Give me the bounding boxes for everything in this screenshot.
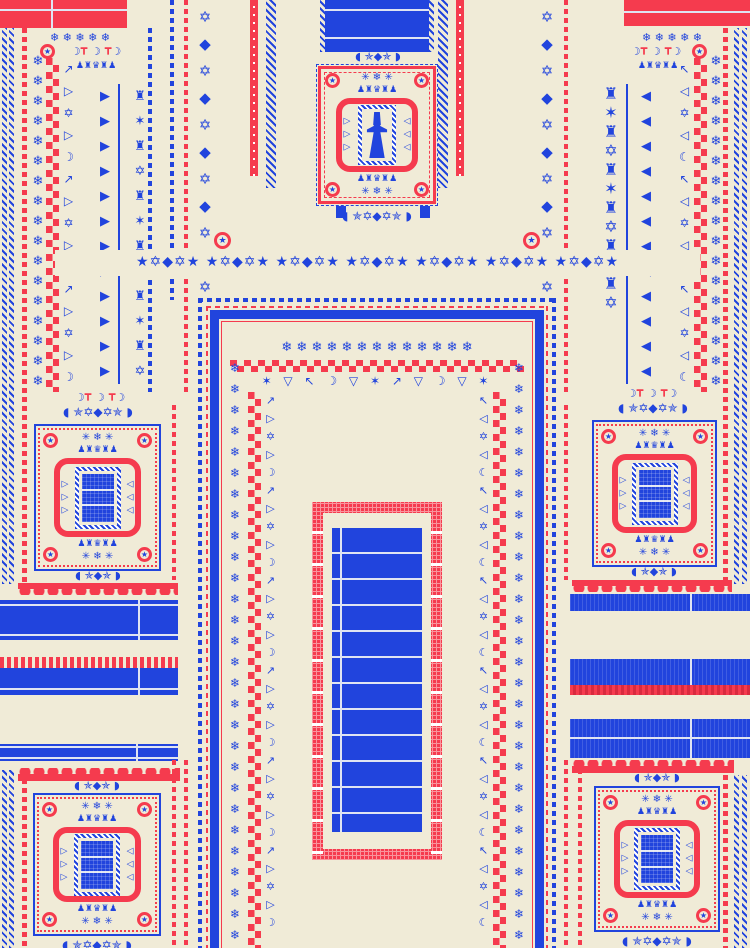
snowflake-row: ✳ ❄ ✳	[62, 551, 133, 563]
star-medallion: ★	[137, 912, 152, 927]
invader-row: ♟♜♛♜♟	[64, 539, 131, 550]
snowflake-row: ✳ ❄ ✳	[344, 186, 410, 198]
divider-line	[0, 9, 127, 11]
tick-column	[312, 502, 323, 860]
snowflake-column: ❄ ❄ ❄ ❄ ❄ ❄ ❄ ❄ ❄ ❄ ❄ ❄ ❄ ❄ ❄ ❄ ❄ ❄ ❄ ❄ …	[510, 358, 528, 948]
dashed-line	[184, 0, 188, 392]
invader-row: ♟♜♛♜♟	[63, 814, 131, 825]
meander-chain	[230, 360, 524, 372]
panel-grid	[82, 474, 114, 522]
edge-bar	[2, 770, 7, 948]
carpet-artwork: ◖ ✯◆✯ ◗ ★ ★ ★ ★ ✳ ❄ ✳ ♟♜♛♜♟ ▷ ▷ ▷ ◁ ◁ ◁ …	[0, 0, 750, 948]
crescent-row: ☽ ☽ ☽	[616, 46, 696, 59]
star-medallion: ★	[603, 795, 618, 810]
hatch-bar	[438, 0, 448, 188]
invader-row: ♟♜♛♜♟	[622, 441, 687, 452]
star-medallion: ★	[414, 182, 429, 197]
ornament-row: ◖ ✯✡◆✡✯ ◗	[592, 400, 714, 417]
star-medallion: ★	[693, 543, 708, 558]
flag-band	[0, 744, 178, 761]
divider-line	[320, 9, 434, 11]
invader-row: ♟♜♛♜♟	[620, 61, 696, 73]
star-medallion: ★	[137, 547, 152, 562]
rug-border	[206, 306, 208, 948]
dashed-line	[564, 760, 568, 948]
divider-line	[624, 11, 750, 13]
meander-chain	[493, 392, 506, 948]
star-medallion: ★	[693, 429, 708, 444]
star-medallion: ★	[325, 182, 340, 197]
panel-grid	[641, 835, 673, 883]
dashed-line	[172, 405, 176, 580]
invader-row: ♟♜♛♜♟	[624, 900, 690, 911]
hatch-edge	[320, 0, 325, 52]
motif-column: ▷ ▷ ▷	[58, 478, 72, 517]
motif-column: ◁ ◁ ◁	[400, 116, 414, 155]
snowflake-row: ✳ ❄ ✳	[622, 794, 692, 806]
flag-band	[0, 600, 178, 640]
chain-motif-column: ↖ ◁ ✡ ◁ ☾ ↖ ◁ ✡ ◁ ☾ ↖ ◁ ✡ ◁ ☾	[676, 58, 693, 392]
edge-bar	[22, 770, 27, 948]
star-medallion: ★	[696, 908, 711, 923]
snowflake-column: ❄ ❄ ❄ ❄ ❄ ❄ ❄ ❄ ❄ ❄ ❄ ❄ ❄ ❄ ❄ ❄ ❄	[29, 52, 47, 392]
edge-bar	[723, 28, 728, 584]
dashed-line	[578, 760, 582, 948]
ornament-row: ◖ ✯◆✯ ◗	[38, 570, 158, 583]
star-medallion: ★	[43, 433, 58, 448]
star-medallion: ★	[523, 232, 540, 249]
divider-line	[570, 737, 750, 739]
divider-line	[0, 688, 178, 690]
rug-border	[206, 306, 548, 308]
rug-border	[198, 298, 202, 948]
red-bar	[250, 0, 258, 176]
striped-band	[570, 685, 750, 695]
flag-band	[0, 668, 178, 695]
edge-bar	[22, 28, 27, 584]
star-medallion: ★	[137, 802, 152, 817]
snowflake-row: ✳ ❄ ✳	[61, 916, 133, 928]
divider-line	[0, 746, 178, 748]
divider-line	[0, 604, 178, 606]
chain-motif-column: ↖ ◁ ✡ ◁ ☾ ↖ ◁ ✡ ◁ ☾ ↖ ◁ ✡ ◁ ☾ ↖ ◁ ✡ ◁ ☾ …	[475, 392, 492, 948]
star-medallion: ★	[601, 543, 616, 558]
star-medallion: ★	[325, 73, 340, 88]
star-medallion: ★	[42, 802, 57, 817]
edge-bar	[734, 775, 739, 948]
snowflake-row: ✳ ❄ ✳	[62, 432, 133, 444]
ornament-row: ◖ ✯✡◆✡✯ ◗	[38, 404, 158, 421]
motif-column: ▷ ▷ ▷	[340, 116, 354, 155]
motif-column: ◁ ◁ ◁	[682, 840, 696, 879]
scallop-band	[572, 580, 732, 592]
star-medallion: ★	[414, 73, 429, 88]
snowflake-row: ✳ ❄ ✳	[620, 428, 689, 440]
dashed-line	[184, 760, 188, 948]
striped-band	[0, 657, 178, 668]
rug-bottom-left: ★ ★ ★ ★ ✳ ❄ ✳ ♟♜♛♜♟ ▷ ▷ ▷ ◁ ◁ ◁ ♟♜♛♜♟ ✳ …	[33, 793, 161, 936]
snowflake-row: ✳ ❄ ✳	[344, 72, 410, 84]
star-medallion: ★	[137, 433, 152, 448]
divider-line	[690, 659, 692, 685]
arrow-column: ▶ ▶ ▶ ▶ ▶ ▶ ▶ ▶ ▶ ▶ ▶ ▶	[92, 84, 120, 384]
edge-bar	[734, 28, 739, 584]
invader-row: ♟♜♛♜♟	[63, 904, 131, 915]
divider-line	[320, 37, 434, 39]
meander-chain	[694, 58, 707, 392]
top-left-red-block	[0, 0, 127, 28]
top-blue-panel	[320, 0, 434, 52]
arrow-column: ◀ ◀ ◀ ◀ ◀ ◀ ◀ ◀ ◀ ◀ ◀ ◀	[632, 84, 660, 384]
rug-border	[198, 298, 556, 302]
snowflake-row: ✳ ❄ ✳	[61, 801, 133, 813]
dashed-line	[148, 28, 152, 392]
snowflake-row: ✳ ❄ ✳	[622, 912, 692, 924]
top-right-red-block	[624, 0, 750, 26]
central-blue-panel	[332, 528, 422, 832]
divider-line	[690, 594, 692, 611]
divider-line	[0, 757, 178, 759]
ornament-row: ◖ ✯◆✯ ◗	[318, 50, 438, 65]
motif-column: ◁ ◁ ◁	[123, 478, 137, 517]
ornament-row: ◖ ✯◆✯ ◗	[36, 780, 158, 793]
divider-line	[690, 719, 692, 758]
motif-column: ◁ ◁ ◁	[123, 845, 137, 884]
invader-column: ♜ ✶ ♜ ✡ ♜ ✶ ♜ ✡ ♜ ✶ ♜ ✡	[596, 84, 628, 384]
dashed-line	[172, 760, 176, 948]
edge-bar	[2, 28, 7, 584]
motif-column: ▷ ▷ ▷	[57, 845, 71, 884]
star-medallion: ★	[43, 547, 58, 562]
dashed-line	[564, 405, 568, 580]
scallop-band	[18, 583, 178, 595]
snowflake-row: ✳ ❄ ✳	[620, 547, 689, 559]
snowflake-column: ❄ ❄ ❄ ❄ ❄ ❄ ❄ ❄ ❄ ❄ ❄ ❄ ❄ ❄ ❄ ❄ ❄ ❄ ❄ ❄ …	[226, 358, 244, 948]
edge-bar	[9, 28, 14, 584]
invader-row: ♟♜♛♜♟	[624, 807, 690, 818]
ornament-row: ◖ ✯✡◆✡✯ ◗	[316, 208, 438, 226]
rug-top-center: ★ ★ ★ ★ ✳ ❄ ✳ ♟♜♛♜♟ ▷ ▷ ▷ ◁ ◁ ◁ ♟♜♛♜♟ ✳ …	[316, 64, 438, 206]
invader-row: ♟♜♛♜♟	[346, 174, 408, 185]
motif-column: ▷ ▷ ▷	[618, 840, 632, 879]
ornament-row: ◖ ✯✡◆✡✯ ◗	[36, 938, 158, 948]
ornament-row: ◖ ✯◆✯ ◗	[594, 566, 714, 579]
rug-middle-left: ★ ★ ★ ★ ✳ ❄ ✳ ♟♜♛♜♟ ▷ ▷ ▷ ◁ ◁ ◁ ♟♜♛♜♟ ✳ …	[34, 424, 161, 571]
center-panel	[358, 105, 396, 165]
star-medallion: ★	[214, 232, 231, 249]
divider-line	[51, 0, 53, 28]
ornament-row: ◖ ✯✡◆✡✯ ◗	[598, 934, 716, 948]
red-bar	[456, 0, 464, 176]
rug-border	[552, 298, 556, 948]
meander-motif-row: ✶ ▽ ↖ ☽ ▽ ✶ ↗ ▽ ☽ ▽ ✶	[230, 373, 524, 391]
star-band: ★✡◆✡★ ★✡◆✡★ ★✡◆✡★ ★✡◆✡★ ★✡◆✡★ ★✡◆✡★ ★✡◆✡…	[55, 250, 700, 276]
invader-row: ♟♜♛♜♟	[64, 445, 131, 456]
chain-motif-column: ↗ ▷ ✡ ▷ ☽ ↗ ▷ ✡ ▷ ☽ ↗ ▷ ✡ ▷ ☽ ↗ ▷ ✡ ▷ ☽ …	[262, 392, 279, 948]
divider-line	[138, 668, 140, 695]
star-medallion: ★	[603, 908, 618, 923]
center-panel	[74, 834, 120, 896]
rug-bottom-right: ★ ★ ★ ★ ✳ ❄ ✳ ♟♜♛♜♟ ▷ ▷ ▷ ◁ ◁ ◁ ♟♜♛♜♟ ✳ …	[594, 786, 720, 932]
motif-column: ◁ ◁ ◁	[679, 474, 693, 513]
star-medallion: ★	[696, 795, 711, 810]
divider-line	[0, 634, 178, 636]
panel-grid	[639, 470, 671, 518]
dashed-line	[564, 0, 568, 392]
tick-column	[431, 502, 442, 860]
panel-grid	[81, 841, 113, 889]
divider-line	[136, 744, 138, 761]
center-panel	[75, 467, 121, 529]
edge-bar	[742, 28, 747, 584]
motif-column: ▷ ▷ ▷	[616, 474, 630, 513]
edge-bar	[723, 775, 728, 948]
snowflake-row: ❄ ❄ ❄ ❄ ❄ ❄ ❄ ❄ ❄ ❄ ❄ ❄ ❄	[228, 338, 526, 358]
meander-chain	[46, 58, 59, 392]
central-panel-frame	[312, 502, 442, 860]
flag-band	[570, 659, 750, 685]
invader-row: ♟♜♛♜♟	[622, 535, 687, 546]
center-panel	[634, 828, 680, 890]
hatch-edge	[429, 0, 434, 52]
rug-middle-right: ★ ★ ★ ★ ✳ ❄ ✳ ♟♜♛♜♟ ▷ ▷ ▷ ◁ ◁ ◁ ♟♜♛♜♟ ✳ …	[592, 420, 717, 567]
star-medallion: ★	[42, 912, 57, 927]
center-panel	[632, 463, 678, 525]
hatch-bar	[266, 0, 276, 188]
flag-band	[570, 594, 750, 611]
invader-row: ♟♜♛♜♟	[346, 85, 408, 96]
divider-line	[138, 600, 140, 640]
edge-bar	[742, 775, 747, 948]
ornament-row: ◖ ✯◆✯ ◗	[598, 772, 716, 785]
star-medallion: ★	[601, 429, 616, 444]
rug-central: ❄ ❄ ❄ ❄ ❄ ❄ ❄ ❄ ❄ ❄ ❄ ❄ ❄ ✶ ▽ ↖ ☽ ▽ ✶ ↗ …	[198, 298, 556, 948]
rug-border	[546, 306, 548, 948]
chain-motif-column: ↗ ▷ ✡ ▷ ☽ ↗ ▷ ✡ ▷ ☽ ↗ ▷ ✡ ▷ ☽	[60, 58, 77, 392]
meander-chain	[248, 392, 261, 948]
edge-bar	[9, 770, 14, 948]
flag-band	[570, 719, 750, 758]
